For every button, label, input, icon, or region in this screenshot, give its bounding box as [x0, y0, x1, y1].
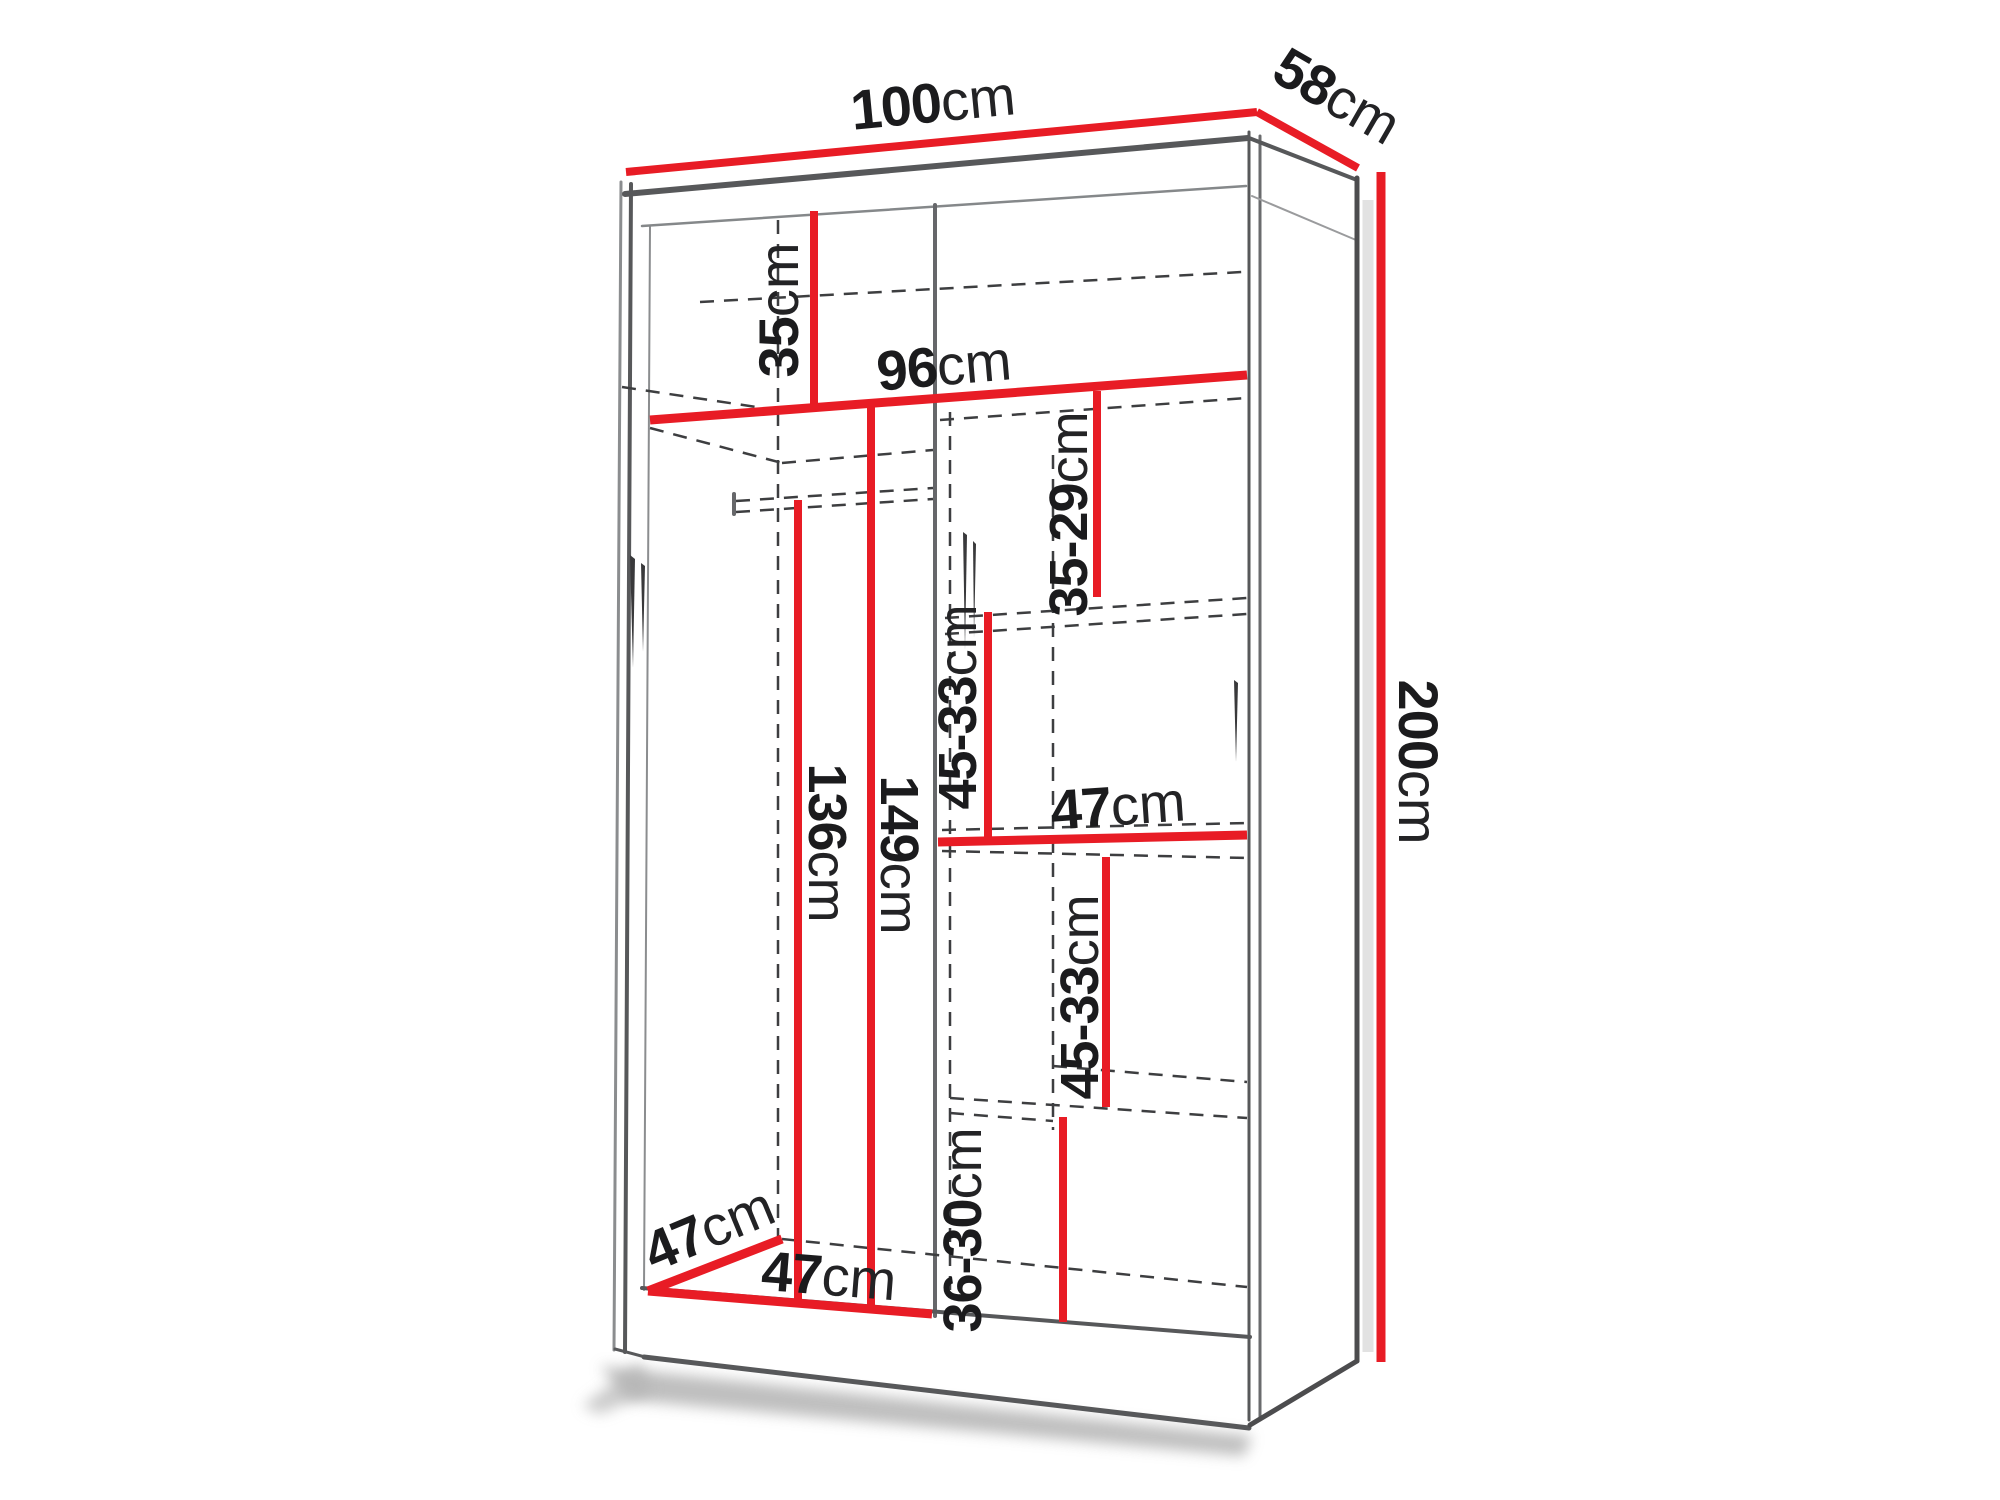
dim-label-width: 100cm: [848, 67, 1018, 139]
dim-label-lower-right-gap: 45-33cm: [1053, 894, 1107, 1099]
left-door-glint-2: [641, 563, 645, 652]
dim-label-rail-height: 136cm: [800, 763, 854, 922]
dim-unit: cm: [938, 63, 1018, 133]
dim-label-height: 200cm: [1390, 679, 1446, 844]
dim-value: 36-30: [933, 1199, 993, 1332]
dim-label-top-compartment: 35cm: [751, 243, 807, 378]
dim-value: 35: [747, 317, 810, 377]
dim-unit: cm: [747, 243, 810, 318]
dim-value: 47: [759, 1239, 824, 1307]
dim-value: 96: [874, 335, 940, 403]
left-inner-stile: [644, 226, 650, 1290]
left-edge-outer: [614, 182, 621, 1350]
shelf3-under-hidden: [942, 851, 1247, 858]
dim-value: 136: [797, 763, 857, 850]
dim-unit: cm: [1039, 411, 1099, 483]
dim-value: 35-29: [1039, 483, 1099, 616]
wardrobe-dimension-diagram: 100cm 58cm 200cm 35cm 96cm 35-29cm 45-33…: [0, 0, 2000, 1500]
dim-label-right-shelf-width: 47cm: [1049, 773, 1188, 838]
top-shelf-back-hidden: [782, 450, 933, 463]
dim-unit: cm: [797, 851, 857, 923]
ceiling-edge: [642, 186, 1246, 226]
dim-label-bottom-right-gap: 36-30cm: [936, 1127, 990, 1332]
dim-unit: cm: [869, 863, 929, 935]
right-door-glint: [1234, 680, 1238, 762]
dim-label-upper-right-gap: 35-29cm: [1042, 411, 1096, 616]
dim-label-left-interior-height: 149cm: [872, 775, 926, 934]
dim-value: 100: [848, 70, 944, 141]
plinth-left-foot: [615, 1349, 645, 1357]
side-bottom-edge: [1250, 1361, 1357, 1425]
dim-unit: cm: [933, 1127, 993, 1199]
dim-value: 149: [869, 775, 929, 862]
dimension-lines: [626, 112, 1381, 1362]
side-top-inner: [1252, 196, 1356, 240]
hanging-rail-front: [736, 488, 933, 501]
shadow-main: [600, 1366, 1252, 1456]
hanging-rail-back: [736, 499, 933, 512]
dim-value: 45-33: [1050, 966, 1110, 1099]
dim-value: 47: [1048, 775, 1113, 842]
floor-shadow: [582, 1362, 1252, 1456]
dim-value: 45-33: [928, 676, 988, 809]
dim-unit: cm: [1109, 769, 1188, 837]
shelf4-front-hidden: [950, 1098, 1247, 1118]
dim-unit: cm: [934, 328, 1014, 397]
dim-value: 200: [1387, 679, 1450, 769]
left-edge: [625, 184, 631, 1352]
dim-unit: cm: [1387, 770, 1450, 845]
dim-label-mid-right-gap: 45-33cm: [931, 604, 985, 809]
dim-label-interior-width: 96cm: [874, 332, 1013, 400]
diagram-linework: [0, 0, 2000, 1500]
dim-label-left-section-width: 47cm: [760, 1243, 899, 1309]
dim-unit: cm: [819, 1244, 898, 1313]
top-shelf-depth-hidden: [650, 428, 782, 463]
shelf4-back-hidden: [950, 1113, 1053, 1121]
dim-unit: cm: [928, 604, 988, 676]
dim-unit: cm: [1050, 894, 1110, 966]
